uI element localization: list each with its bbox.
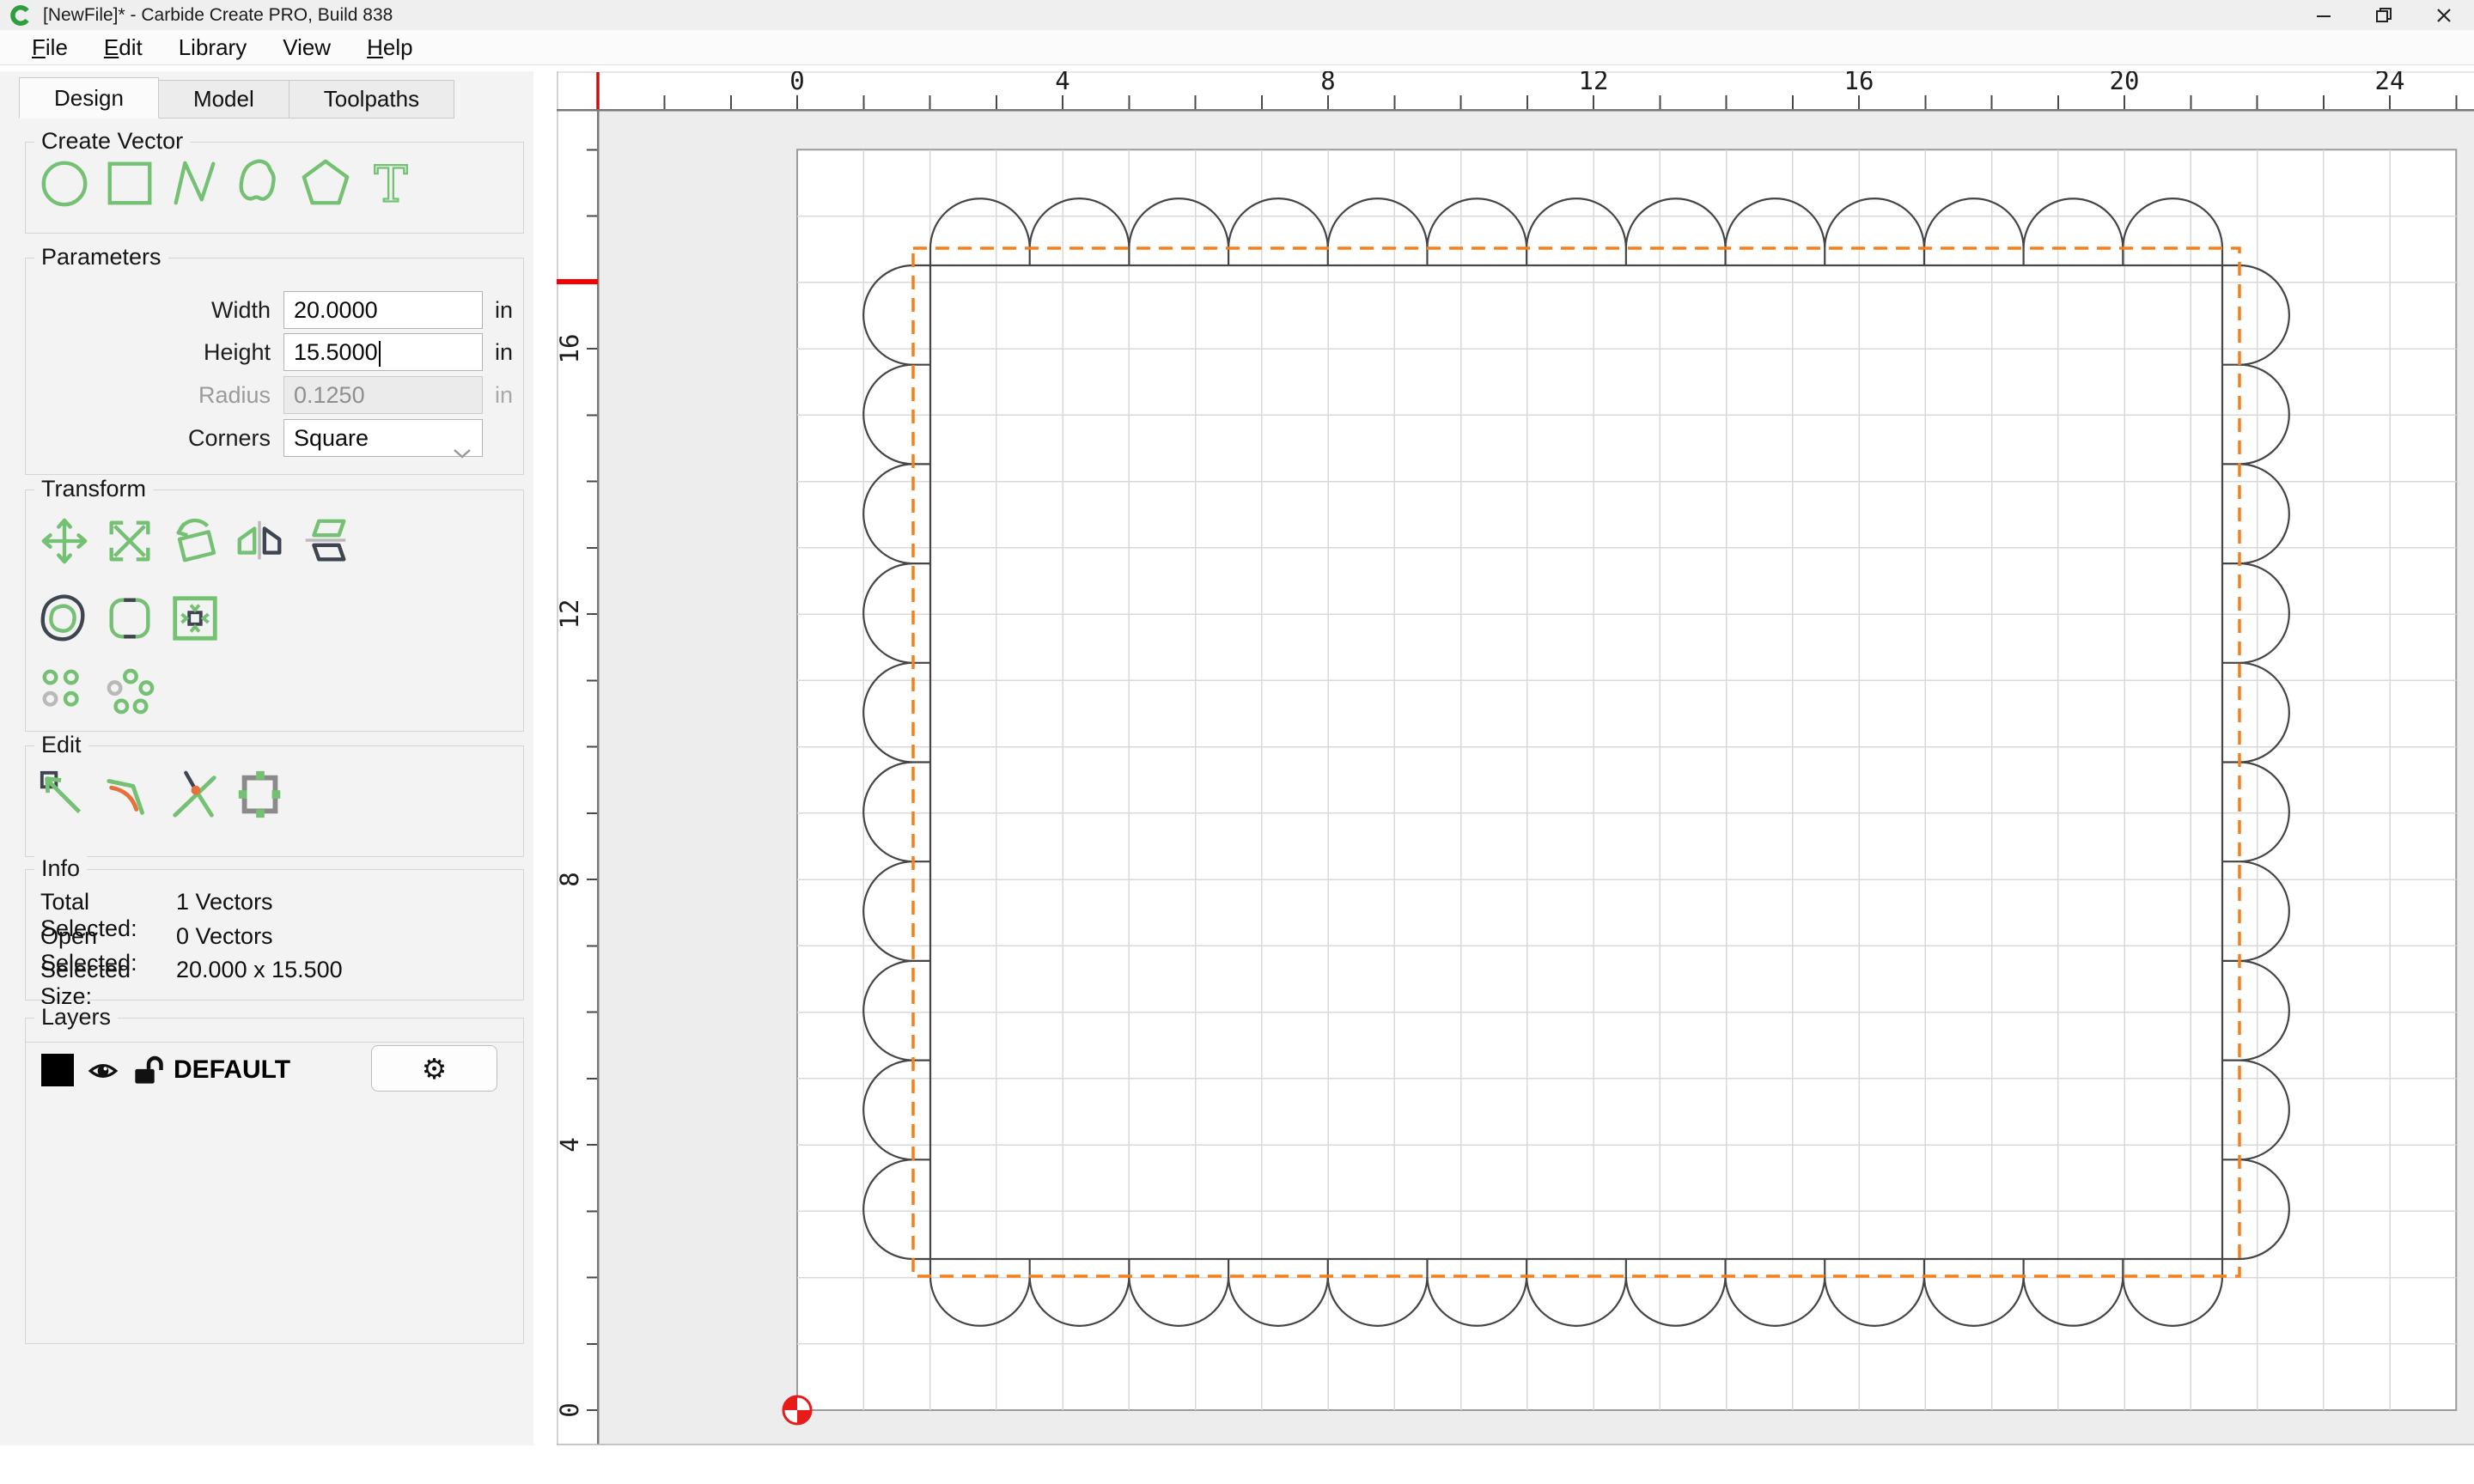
parameters-title: Parameters	[34, 244, 168, 271]
stock	[797, 149, 2456, 1410]
window-title: [NewFile]* - Carbide Create PRO, Build 8…	[43, 5, 393, 26]
scale-tool[interactable]	[103, 514, 156, 568]
info-value: 20.000 x 15.500	[176, 957, 343, 991]
radius-unit: in	[495, 375, 513, 415]
height-unit: in	[495, 332, 513, 372]
eye-icon[interactable]	[88, 1055, 119, 1091]
v-ruler-label: 0	[557, 1402, 584, 1417]
tab-toolpaths[interactable]: Toolpaths	[289, 80, 454, 119]
canvas-svg[interactable]: 048121620241612840	[557, 71, 2474, 1445]
flip-horizontal-tool[interactable]	[234, 514, 287, 568]
node-edit-tool[interactable]	[38, 769, 91, 822]
h-ruler-label: 8	[1320, 71, 1335, 95]
height-label: Height	[26, 332, 271, 372]
unlock-icon[interactable]	[132, 1054, 165, 1091]
radius-label: Radius	[26, 375, 271, 415]
create-vector-group: Create Vector T	[25, 142, 524, 234]
info-label: Selected Size:	[40, 957, 176, 991]
width-label: Width	[26, 290, 271, 330]
svg-text:T: T	[375, 156, 408, 210]
divider	[26, 1042, 523, 1043]
info-selected-size: Selected Size: 20.000 x 15.500	[40, 957, 504, 991]
h-ruler-label: 16	[1844, 71, 1874, 95]
height-row: Height 15.5000 in	[26, 332, 523, 372]
menu-library[interactable]: Library	[161, 34, 265, 61]
info-title: Info	[34, 855, 87, 882]
menu-view[interactable]: View	[265, 34, 349, 61]
layers-group: Layers DEFAULT ⚙︎	[25, 1018, 524, 1344]
corners-label: Corners	[26, 418, 271, 458]
h-ruler-label: 12	[1579, 71, 1609, 95]
v-ruler-red-marker	[557, 279, 598, 284]
layer-settings-button[interactable]: ⚙︎	[371, 1045, 497, 1092]
layer-color-swatch[interactable]	[41, 1054, 74, 1086]
curve-tool[interactable]	[234, 156, 287, 210]
close-button[interactable]	[2414, 0, 2474, 30]
grid-array-tool[interactable]	[38, 665, 91, 718]
curve-edit-tool[interactable]	[103, 769, 156, 822]
h-ruler-label: 20	[2110, 71, 2140, 95]
text-caret	[379, 341, 381, 367]
main-tabs: DesignModelToolpaths	[19, 77, 454, 119]
transform-title: Transform	[34, 476, 153, 502]
menu-help[interactable]: Help	[349, 34, 430, 61]
v-ruler-label: 8	[557, 872, 584, 886]
minimize-button[interactable]	[2294, 0, 2354, 30]
parameters-group: Parameters Width 20.0000 in Height 15.50…	[25, 258, 524, 475]
select-handles-tool[interactable]	[234, 769, 287, 822]
trim-tool[interactable]	[168, 769, 222, 822]
layer-name: DEFAULT	[174, 1055, 290, 1085]
rotate-tool[interactable]	[168, 514, 222, 568]
create-vector-title: Create Vector	[34, 128, 190, 155]
h-ruler-label: 4	[1055, 71, 1069, 95]
radius-input: 0.1250	[283, 376, 483, 414]
nest-tool[interactable]	[168, 592, 222, 645]
layer-row-default[interactable]: DEFAULT ⚙︎	[26, 1047, 523, 1093]
carbide-create-window: [NewFile]* - Carbide Create PRO, Build 8…	[0, 0, 2474, 1484]
transform-group: Transform	[25, 490, 524, 732]
chevron-down-icon	[453, 434, 472, 470]
info-label: Open Selected:	[40, 923, 176, 958]
info-value: 1 Vectors	[176, 889, 273, 923]
gear-icon: ⚙︎	[422, 1052, 448, 1086]
radial-array-tool[interactable]	[103, 665, 156, 718]
restore-button[interactable]	[2354, 0, 2414, 30]
polygon-tool[interactable]	[299, 156, 352, 210]
tab-design[interactable]: Design	[19, 77, 159, 119]
v-ruler-label: 16	[557, 334, 584, 364]
menu-edit[interactable]: Edit	[86, 34, 161, 61]
text-tool[interactable]: T	[364, 156, 417, 210]
info-group: Info Total Selected: 1 Vectors Open Sele…	[25, 869, 524, 1000]
info-label: Total Selected:	[40, 889, 176, 923]
round-corners-tool[interactable]	[103, 592, 156, 645]
circle-tool[interactable]	[38, 156, 91, 210]
flip-vertical-tool[interactable]	[299, 514, 352, 568]
origin-marker[interactable]	[783, 1396, 811, 1424]
rectangle-tool[interactable]	[103, 156, 156, 210]
menu-bar: FileEditLibraryViewHelp	[0, 30, 2474, 65]
radius-row: Radius 0.1250 in	[26, 375, 523, 415]
h-ruler-label: 0	[789, 71, 804, 95]
v-ruler-label: 4	[557, 1137, 584, 1152]
menu-file[interactable]: File	[14, 34, 86, 61]
info-total-selected: Total Selected: 1 Vectors	[40, 889, 504, 923]
h-ruler-label: 24	[2375, 71, 2405, 95]
corners-dropdown[interactable]: Square	[283, 419, 483, 457]
move-tool[interactable]	[38, 514, 91, 568]
layers-title: Layers	[34, 1004, 118, 1031]
app-logo-icon	[10, 5, 31, 26]
polyline-tool[interactable]	[168, 156, 222, 210]
canvas-area[interactable]: 048121620241612840	[557, 71, 2474, 1445]
corners-row: Corners Square	[26, 418, 523, 458]
v-ruler-label: 12	[557, 599, 584, 629]
info-value: 0 Vectors	[176, 923, 273, 958]
title-bar: [NewFile]* - Carbide Create PRO, Build 8…	[0, 0, 2474, 30]
tab-model[interactable]: Model	[159, 80, 289, 119]
height-input[interactable]: 15.5000	[283, 333, 483, 371]
design-panel: DesignModelToolpaths Create Vector	[0, 71, 533, 1445]
width-row: Width 20.0000 in	[26, 290, 523, 330]
edit-group: Edit	[25, 745, 524, 857]
info-open-selected: Open Selected: 0 Vectors	[40, 923, 504, 958]
offset-tool[interactable]	[38, 592, 91, 645]
width-unit: in	[495, 290, 513, 330]
edit-title: Edit	[34, 732, 88, 758]
width-input[interactable]: 20.0000	[283, 291, 483, 329]
